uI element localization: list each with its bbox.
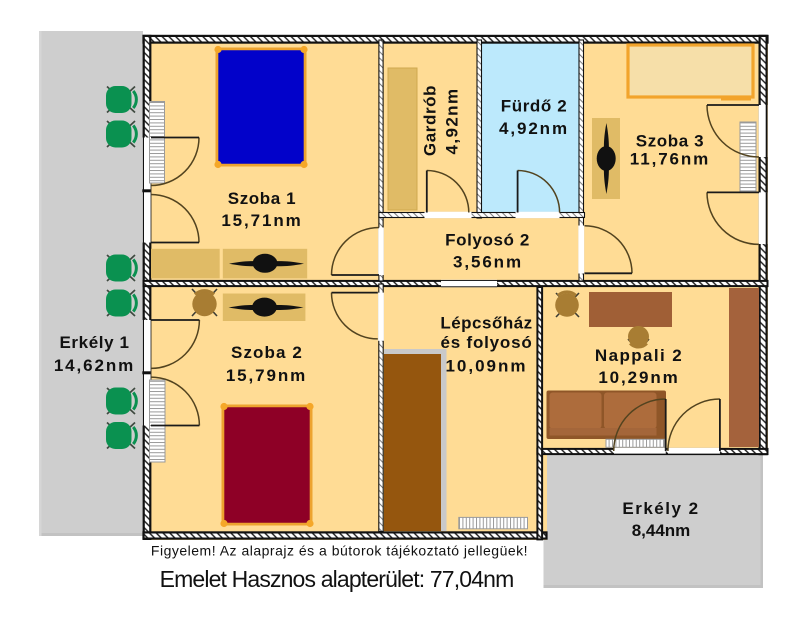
- svg-text:Szoba 2: Szoba 2: [231, 343, 303, 362]
- svg-text:és folyosó: és folyosó: [440, 333, 532, 352]
- svg-text:15,71nm: 15,71nm: [221, 211, 302, 230]
- svg-text:8,44nm: 8,44nm: [632, 521, 691, 540]
- svg-text:Erkély 1: Erkély 1: [59, 333, 129, 352]
- svg-text:15,79nm: 15,79nm: [226, 366, 307, 385]
- svg-text:4,92nm: 4,92nm: [443, 88, 462, 155]
- svg-text:Figyelem! Az alaprajz és a bút: Figyelem! Az alaprajz és a bútorok tájék…: [151, 543, 528, 559]
- svg-text:Folyosó 2: Folyosó 2: [445, 231, 530, 250]
- svg-text:10,09nm: 10,09nm: [445, 357, 527, 376]
- svg-text:Fürdő 2: Fürdő 2: [501, 97, 568, 116]
- svg-text:Gardrób: Gardrób: [421, 85, 440, 156]
- svg-text:10,29nm: 10,29nm: [598, 368, 679, 387]
- svg-text:3,56nm: 3,56nm: [453, 253, 523, 272]
- svg-text:14,62nm: 14,62nm: [54, 356, 135, 375]
- svg-text:11,76nm: 11,76nm: [630, 150, 710, 169]
- svg-text:Szoba 1: Szoba 1: [228, 189, 296, 208]
- svg-text:Emelet Hasznos alapterület: 77: Emelet Hasznos alapterület: 77,04nm: [160, 566, 514, 592]
- svg-text:Lépcsőház: Lépcsőház: [440, 314, 532, 333]
- svg-text:Nappali 2: Nappali 2: [595, 346, 683, 365]
- svg-text:Szoba 3: Szoba 3: [636, 132, 704, 151]
- svg-text:4,92nm: 4,92nm: [499, 119, 569, 138]
- svg-text:Erkély 2: Erkély 2: [622, 499, 699, 518]
